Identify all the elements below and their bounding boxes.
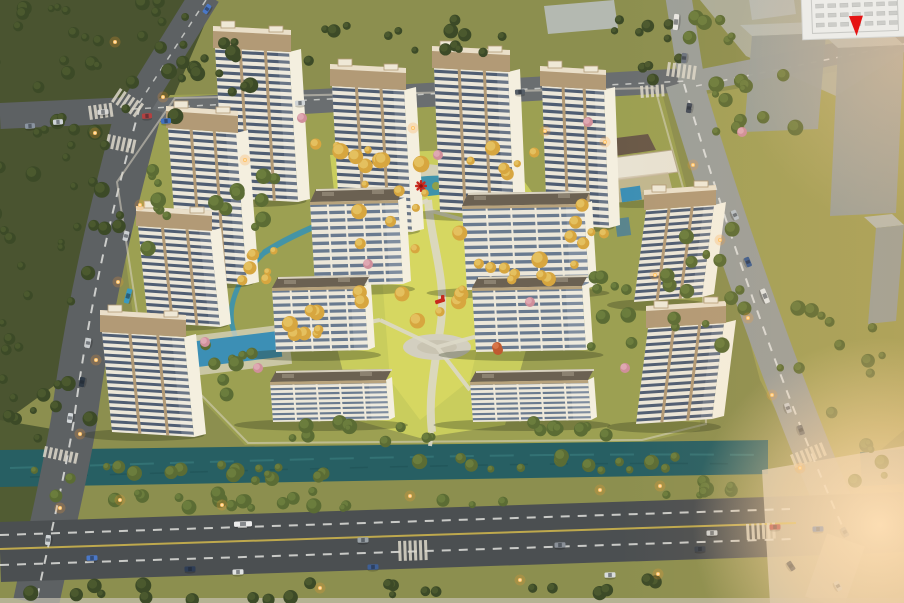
inset-footprint [840, 3, 848, 7]
inset-footprint [828, 13, 836, 17]
warm-edge [0, 0, 904, 603]
inset-footprint [865, 21, 873, 25]
inset-footprint [877, 11, 885, 15]
inset-footprint [889, 20, 897, 24]
atmosphere-layer [0, 0, 904, 603]
inset-footprint [816, 14, 824, 18]
inset-footprint [852, 3, 860, 7]
inset-footprint [828, 23, 836, 27]
inset-footprint [840, 13, 848, 17]
inset-footprint [877, 21, 885, 25]
inset-footprint [816, 23, 824, 27]
site-plan-inset [801, 0, 904, 40]
inset-footprint [876, 2, 884, 6]
inset-footprint [828, 4, 836, 8]
inset-footprint [889, 1, 897, 5]
rendering-canvas [0, 0, 904, 603]
inset-footprint [864, 2, 872, 6]
inset-footprint [889, 11, 897, 15]
inset-footprint [865, 12, 873, 16]
inset-footprint [852, 12, 860, 16]
inset-footprint [815, 4, 823, 8]
aerial-render-image [0, 0, 904, 603]
inset-footprint [841, 22, 849, 26]
